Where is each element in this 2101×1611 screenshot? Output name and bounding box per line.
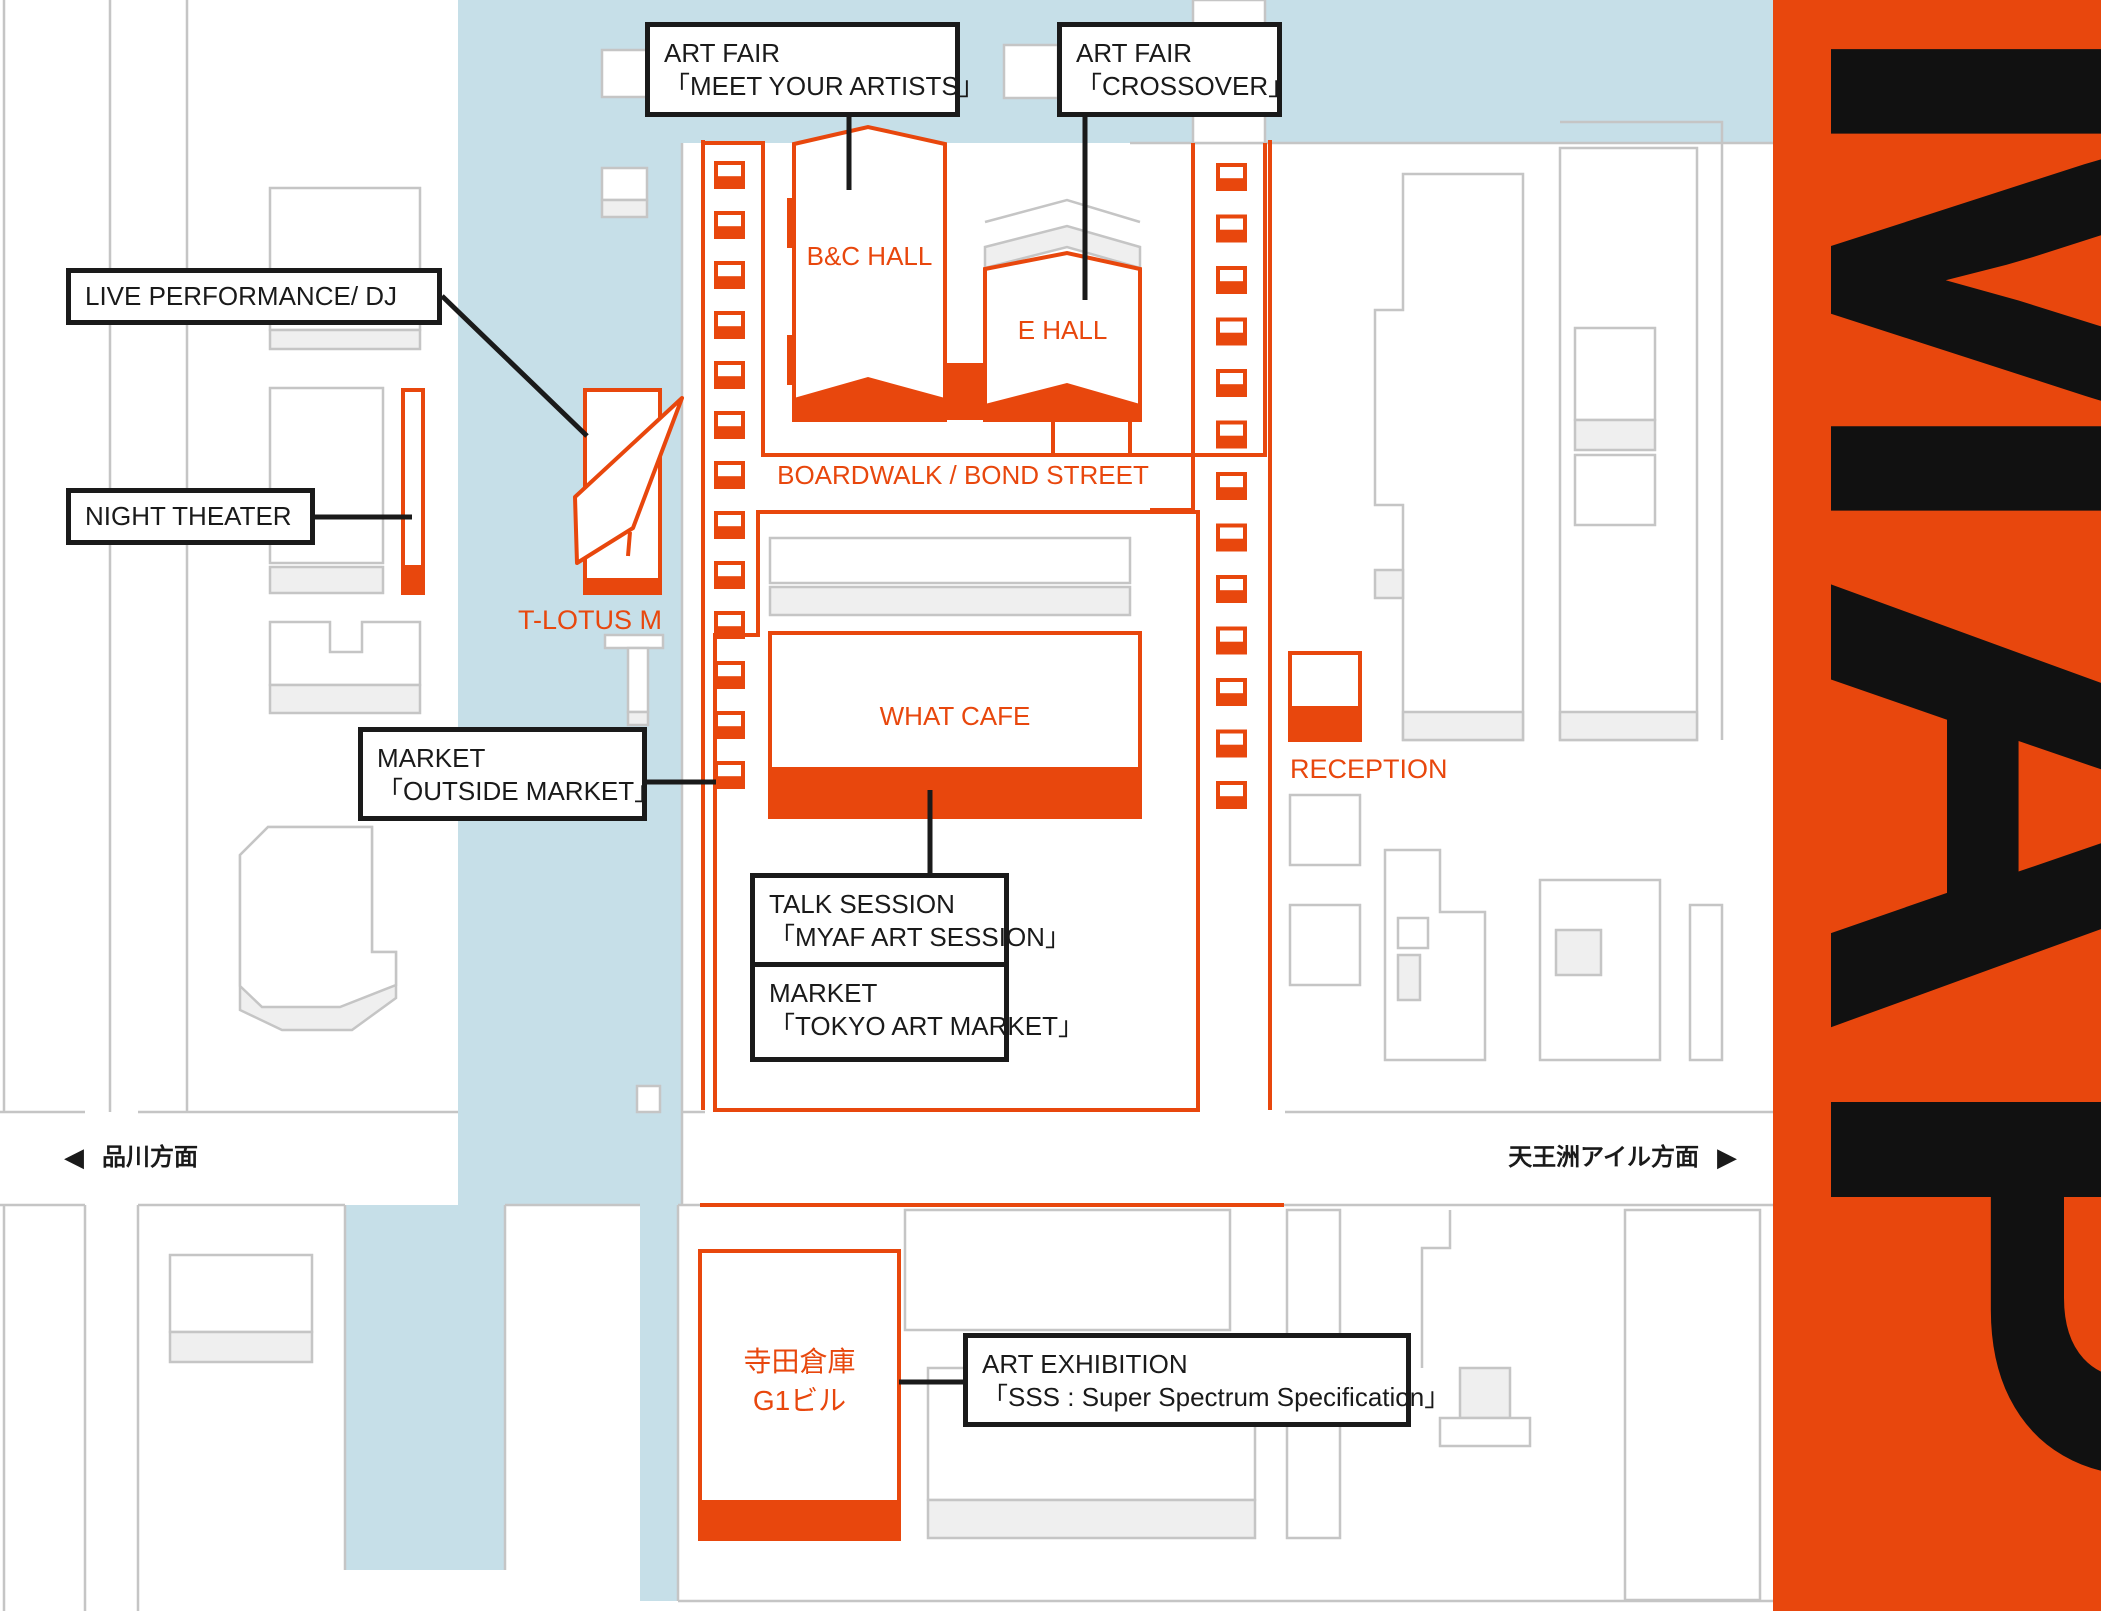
booth-marker-fill [1220,693,1244,703]
callout-night-theater: NIGHT THEATER [66,488,315,545]
booth-marker-fill [718,476,742,486]
callout-line: 「TOKYO ART MARKET」 [769,1010,996,1043]
buildings-right [1290,122,1722,1060]
booth-marker-fill [718,676,742,686]
boardwalk-label: BOARDWALK / BOND STREET [762,459,1164,491]
terrada-line1: 寺田倉庫 [700,1342,899,1381]
booth-marker-fill [1220,384,1244,394]
callout-line: NIGHT THEATER [85,500,302,533]
what-cafe-label: WHAT CAFE [770,700,1140,732]
callout-line: 「OUTSIDE MARKET」 [377,775,634,808]
booth-marker-fill [1220,230,1244,240]
t-lotus-label: T-LOTUS M [480,604,700,636]
bc-hall-shape[interactable] [787,127,945,420]
booth-marker-fill [718,176,742,186]
callout-line: 「MYAF ART SESSION」 [769,921,996,954]
direction-tennozu: 天王洲アイル方面 ▶ [1380,1143,1737,1173]
booth-marker-fill [718,326,742,336]
event-map-page: ART FAIR 「MEET YOUR ARTISTS」 ART FAIR 「C… [0,0,2101,1611]
booth-marker-fill [718,426,742,436]
night-theater-shape[interactable] [403,390,423,593]
map-title: MAP [1773,5,2101,1511]
callout-line: 「SSS : Super Spectrum Specification」 [982,1381,1398,1414]
e-hall-shape[interactable] [985,200,1140,420]
callout-line: MARKET [769,977,996,1010]
callout-line: ART FAIR [664,37,947,70]
callout-art-fair-crossover: ART FAIR 「CROSSOVER」 [1057,22,1282,117]
callout-art-fair-myaf: ART FAIR 「MEET YOUR ARTISTS」 [645,22,960,117]
callout-line: ART FAIR [1076,37,1269,70]
direction-shinagawa-label: 品川方面 [102,1143,198,1173]
callout-line: TALK SESSION [769,888,996,921]
direction-shinagawa: ◀ 品川方面 [64,1143,198,1173]
booth-marker-fill [1220,539,1244,549]
booth-marker-fill [1220,281,1244,291]
booth-marker-fill [1220,642,1244,652]
booth-marker-fill [1220,436,1244,446]
callout-line: MARKET [377,742,634,775]
booth-marker-fill [718,226,742,236]
e-hall-label: E HALL [985,314,1140,346]
booth-marker-fill [718,576,742,586]
booth-marker-fill [1220,590,1244,600]
terrada-g1-label: 寺田倉庫 G1ビル [700,1342,899,1420]
callout-line: ART EXHIBITION [982,1348,1398,1381]
booth-marker-fill [1220,796,1244,806]
hall-connector [945,363,985,420]
callout-live-performance-dj: LIVE PERFORMANCE/ DJ [66,268,442,325]
booth-marker-fill [718,376,742,386]
booth-marker-fill [718,776,742,786]
booth-marker-fill [718,276,742,286]
callout-line: LIVE PERFORMANCE/ DJ [85,280,429,313]
callout-market-tokyo: MARKET 「TOKYO ART MARKET」 [750,962,1009,1062]
booth-marker-fill [718,726,742,736]
booth-marker-fill [718,526,742,536]
booth-marker-fill [1220,333,1244,343]
east-arrow-icon: ▶ [1717,1143,1737,1173]
west-arrow-icon: ◀ [64,1143,84,1173]
bc-hall-label: B&C HALL [794,240,945,272]
booth-marker-fill [1220,487,1244,497]
booth-marker-fill [1220,745,1244,755]
booth-marker-fill [718,626,742,636]
callout-market-outside: MARKET 「OUTSIDE MARKET」 [358,727,647,821]
direction-tennozu-label: 天王洲アイル方面 [1508,1143,1699,1173]
callout-line: 「CROSSOVER」 [1076,70,1269,103]
callout-line: 「MEET YOUR ARTISTS」 [664,70,947,103]
map-sidebar: MAP [1773,0,2101,1611]
callout-talk-session: TALK SESSION 「MYAF ART SESSION」 [750,873,1009,967]
booth-marker-fill [1220,178,1244,188]
reception-label: RECEPTION [1290,753,1448,785]
reception-shape[interactable] [1290,653,1360,740]
callout-art-exhibition: ART EXHIBITION 「SSS : Super Spectrum Spe… [963,1333,1411,1427]
terrada-line2: G1ビル [700,1381,899,1420]
